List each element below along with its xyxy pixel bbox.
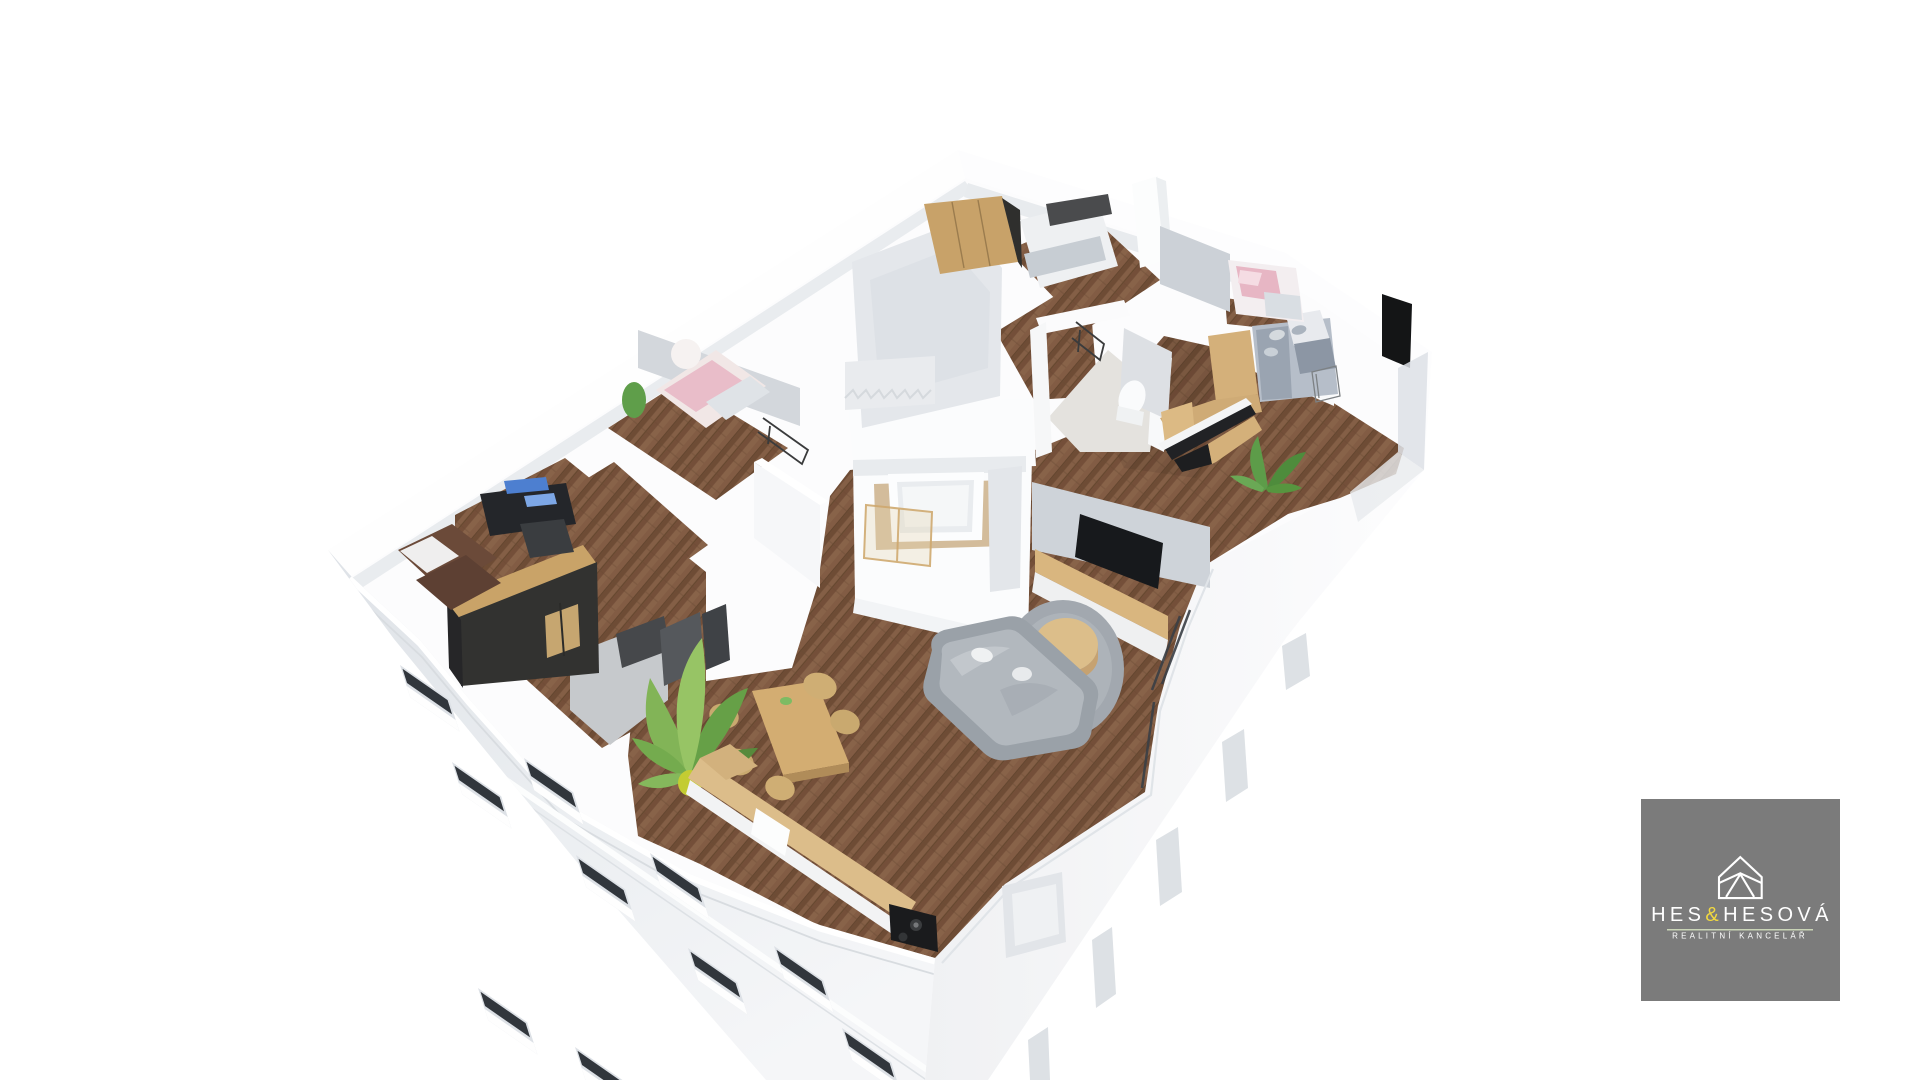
svg-text:HES&HESOVÁ: HES&HESOVÁ bbox=[1651, 903, 1833, 926]
svg-text:REALITNÍ KANCELÁŘ: REALITNÍ KANCELÁŘ bbox=[1672, 932, 1808, 941]
